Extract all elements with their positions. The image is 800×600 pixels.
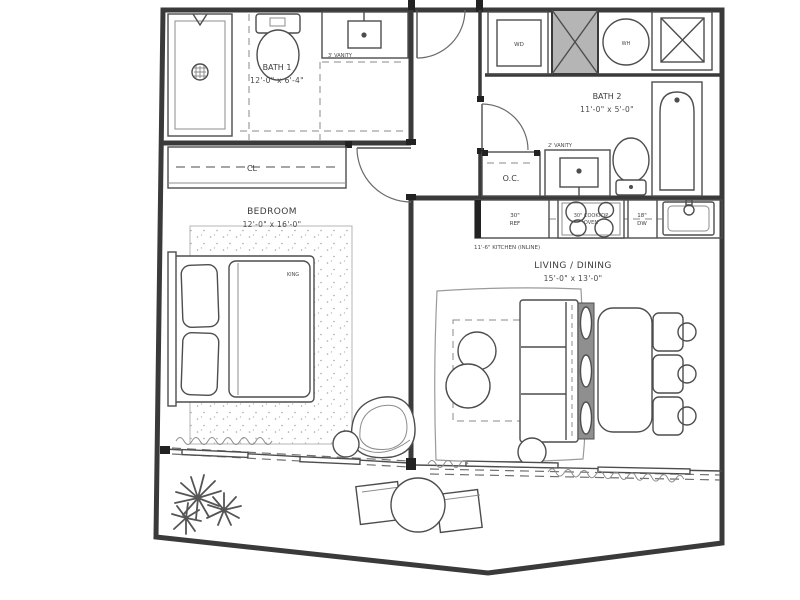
- vanity-bath2: 2' VANITY: [545, 143, 610, 196]
- balcony: [172, 475, 482, 534]
- bath2: 2' VANITY O.C. BATH 2 11'-0" x 5'-0": [482, 82, 702, 196]
- dining-table: [598, 308, 652, 432]
- living-name: LIVING / DINING: [534, 261, 612, 271]
- dishwasher: 18" DW: [628, 200, 657, 238]
- vanity1-label: 3' VANITY: [328, 53, 353, 59]
- kitchen-sink: [663, 200, 714, 235]
- coffee-table-2: [446, 364, 490, 408]
- washer-dryer-label: WD: [514, 42, 524, 48]
- dining-chair: [653, 355, 696, 393]
- balcony-plant: [172, 475, 241, 534]
- bedroom-dims: 12'-0" x 16'-0": [243, 220, 302, 229]
- water-heater: WH: [603, 19, 649, 65]
- mech-shaft-2: [652, 12, 712, 70]
- toilet-bath2: [613, 138, 649, 195]
- closet-label: CL: [247, 164, 258, 173]
- kitchen-note: 11'-6" KITCHEN (INLINE): [474, 245, 540, 251]
- vanity2-label: 2' VANITY: [548, 143, 573, 149]
- bed-size-label: KING: [287, 272, 299, 278]
- floor-plan-drawing: 3' VANITY BATH 1 12'-0" x 6'-4" CL: [0, 0, 800, 600]
- living-dining: LIVING / DINING 15'-0" x 13'-0": [435, 261, 696, 466]
- fridge-label: REF: [510, 221, 520, 227]
- dining-chairs: [653, 313, 696, 435]
- living-dims: 15'-0" x 13'-0": [544, 274, 603, 283]
- fridge-size: 30": [510, 213, 520, 219]
- owners-closet: O.C.: [482, 150, 540, 196]
- bedroom-name: BEDROOM: [247, 207, 297, 217]
- dw-size: 18": [637, 213, 647, 219]
- bath1: 3' VANITY BATH 1 12'-0" x 6'-4": [168, 12, 408, 140]
- bath1-dims: 12'-0" x 6'-4": [250, 76, 304, 85]
- floor-plan-canvas: 3' VANITY BATH 1 12'-0" x 6'-4" CL: [0, 0, 800, 600]
- bathtub: [652, 82, 702, 196]
- bath1-name: BATH 1: [263, 63, 292, 72]
- cooktop-label-1: 30" COOKTOP: [574, 213, 609, 219]
- bedroom: KING BEDROOM 12'-0" x 16'-0": [168, 207, 415, 458]
- utility-closet: WD WH: [488, 10, 712, 74]
- console: [578, 303, 594, 439]
- dw-label: DW: [637, 221, 647, 227]
- owners-closet-label: O.C.: [503, 174, 520, 183]
- shower: [168, 14, 232, 136]
- kitchen: 30" REF 30" COOKTOP OVEN 18" DW 11'-6" K…: [474, 200, 722, 251]
- entry-door: [417, 10, 465, 58]
- refrigerator: 30" REF: [510, 213, 520, 227]
- bath2-door: [482, 104, 528, 150]
- bath2-name: BATH 2: [593, 92, 622, 101]
- sofa: [520, 300, 578, 442]
- bedroom-closet: CL: [168, 147, 346, 188]
- cooktop: 30" COOKTOP OVEN: [558, 200, 624, 238]
- dining-chair: [653, 313, 696, 351]
- water-heater-label: WH: [622, 41, 631, 47]
- balcony-table: [391, 478, 445, 532]
- bath2-dims: 11'-0" x 5'-0": [580, 105, 634, 114]
- dining-chair: [653, 397, 696, 435]
- balcony-table-set: [356, 478, 482, 532]
- vanity-bath1: 3' VANITY: [322, 12, 408, 59]
- king-bed: KING: [168, 252, 314, 406]
- mech-shaft-1: [552, 10, 598, 74]
- side-table: [333, 431, 359, 457]
- cooktop-label-2: OVEN: [584, 220, 598, 226]
- bedroom-door: [357, 148, 411, 202]
